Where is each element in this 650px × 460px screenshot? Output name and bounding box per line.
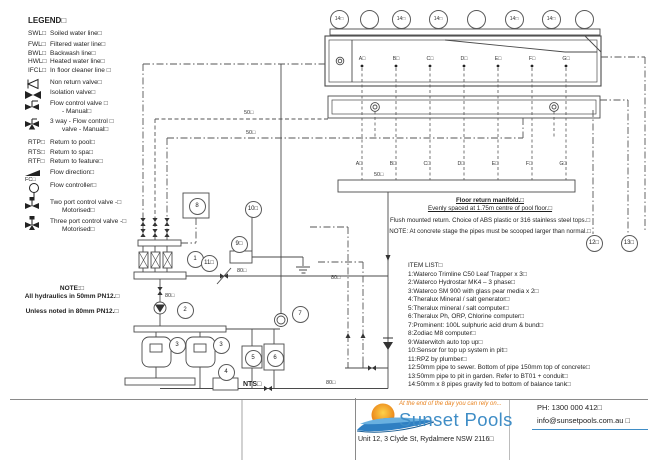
legend-abbr-ifcl: IFCL□: [28, 67, 46, 75]
tag-rpz: 11□: [201, 255, 218, 272]
contact-underline-rule: [532, 429, 648, 430]
legend-desc-bwl: Backwash line□: [50, 50, 95, 58]
item-5: 5:Theralux mineral / salt computer□: [408, 305, 508, 313]
item-4: 4:Theralux Mineral / salt generator□: [408, 296, 509, 304]
flow-gauge-symbol: [275, 314, 288, 327]
manifold-point-b: B□: [390, 161, 397, 168]
legend-abbr-swl: SWL□: [28, 30, 46, 38]
legend-abbr-rtf: RTF□: [28, 158, 44, 166]
pipe-label-80-pump: 80□: [165, 293, 174, 300]
pool-point-f: F□: [529, 56, 535, 63]
legend-desc2-three-port: Motorised□: [62, 226, 94, 234]
legend-desc-non-return: Non return valve□: [50, 79, 102, 87]
legend-abbr-hwl: HWL□: [28, 58, 46, 66]
three-port-valve-icon: [24, 215, 42, 231]
tag-top-up-sensor: 10□: [245, 201, 262, 218]
trapper-bottom-manifold: [134, 272, 186, 279]
legend-desc-rts: Return to spa□: [50, 149, 93, 157]
brand-tagline: At the end of the day you can rely on...: [399, 401, 502, 407]
floor-note-line1: Floor return manifold.□: [370, 197, 610, 204]
flow-control-valve-icon: [24, 99, 42, 113]
item-11: 11:RPZ by plumber□: [408, 356, 466, 364]
tag-acid-drum: 7: [292, 306, 309, 323]
legend-desc-ifcl: In floor cleaner line □: [50, 67, 111, 75]
filter-bottom-manifold: [125, 378, 195, 385]
legend-desc-fcv: Flow control valve □: [50, 100, 108, 108]
manifold-point-e: E□: [492, 161, 499, 168]
floor-note-line4: NOTE: At concrete stage the pipes must b…: [370, 228, 610, 235]
gravity-pipe-callout-6: 14□: [505, 10, 524, 29]
legend-desc-two-port: Two port control valve -□: [50, 199, 121, 207]
flow-arrows: [346, 255, 391, 338]
item-9: 9:Waterwitch auto top up□: [408, 339, 482, 347]
waterwitch-box: [230, 251, 252, 263]
company-address: Unit 12, 3 Clyde St, Rydalmere NSW 2116□: [358, 436, 494, 445]
tag-chlorine-computer: 6: [267, 350, 284, 367]
item-1: 1:Waterco Trimline C50 Leaf Trapper x 3□: [408, 271, 527, 279]
pool-hydraulics-schematic-sheet: LEGEND□ SWL□ Soiled water line□ FWL□ Fil…: [0, 0, 650, 460]
filtered-water-line: [155, 119, 328, 240]
pipe-label-80-suction: 80□: [237, 268, 246, 275]
tag-pump: 2: [177, 302, 194, 319]
gravity-pipe-callout-3: 14□: [392, 10, 411, 29]
item-6: 6:Theralux Ph, ORP, Chlorine computer□: [408, 313, 524, 321]
item-12: 12:50mm pipe to sewer. Bottom of pipe 15…: [408, 364, 590, 372]
item-3: 3:Waterco SM 900 with glass pear media x…: [408, 288, 538, 296]
gravity-pipe-callout-7: 14□: [542, 10, 561, 29]
legend-desc-rtf: Return to feature□: [50, 158, 103, 166]
company-email: info@sunsetpools.com.au □: [537, 416, 630, 425]
filter-top-manifold: [134, 326, 226, 332]
pool-point-a: A□: [359, 56, 366, 63]
legend-desc-flow-direction: Flow direction□: [50, 169, 94, 177]
two-port-valve-icon: [24, 196, 42, 211]
item-14: 14:50mm x 8 pipes gravity fed to bottom …: [408, 381, 571, 389]
legend-abbr-rts: RTS□: [28, 149, 45, 157]
pool-point-b: B□: [393, 56, 400, 63]
pool-point-d: D□: [461, 56, 468, 63]
item-list-title: ITEM LIST□: [408, 262, 442, 270]
nts-label: NTS□: [243, 381, 261, 390]
legend-desc-fwl: Filtered water line□: [50, 41, 105, 49]
multiport-valve-2: [194, 344, 206, 352]
pool-point-e: E□: [495, 56, 502, 63]
pipe-label-50-manifold: 50□: [374, 172, 383, 179]
pool-point-g: G□: [562, 56, 569, 63]
gravity-pipe-callout-2: [360, 10, 379, 29]
legend-desc-isolation: Isolation valve□: [50, 89, 95, 97]
tag-sewer-pipe: 12□: [586, 235, 603, 252]
legend-desc2-fcv: - Manual□: [62, 108, 91, 116]
tag-waterwitch: 9□: [231, 236, 248, 253]
hydraulics-note-line2: Unless noted in 80mm PN12.□: [12, 308, 132, 316]
item-13: 13:50mm pipe to pit in garden. Refer to …: [408, 373, 568, 381]
tag-filter-2: 3: [213, 337, 230, 354]
manifold-point-g: G□: [559, 161, 566, 168]
hydraulics-note-title: NOTE:□: [12, 285, 132, 293]
legend-desc-rtp: Return to pool□: [50, 139, 95, 147]
pipe-label-80-return: 80□: [326, 380, 335, 387]
tag-filter-1: 3: [169, 337, 186, 354]
gravity-pipe-callout-8: [575, 10, 594, 29]
pipe-label-50-upper: 50□: [244, 110, 253, 117]
legend-desc-3way: 3 way - Flow control □: [50, 118, 114, 126]
legend-desc-three-port: Three port control valve -□: [50, 218, 126, 226]
multiport-valve-1: [150, 344, 162, 352]
pump-symbol: [154, 302, 166, 314]
three-way-valve-icon: [24, 117, 42, 132]
company-phone: PH: 1300 000 412□: [537, 403, 602, 412]
pipe-label-80-balance: 80□: [331, 275, 340, 282]
manifold-point-d: D□: [458, 161, 465, 168]
tag-zodiac-computer: 8: [189, 198, 206, 215]
pipe-label-50-lower: 50□: [246, 130, 255, 137]
legend-abbr-rtp: RTP□: [28, 139, 45, 147]
gravity-pipe-callout-4: 14□: [429, 10, 448, 29]
legend-abbr-bwl: BWL□: [28, 50, 46, 58]
item-8: 8:Zodiac M8 computer□: [408, 330, 475, 338]
manifold-point-a: A□: [356, 161, 363, 168]
hydraulics-note-line1: All hydraulics in 50mm PN12.□: [12, 293, 132, 301]
legend-desc2-two-port: Motorised□: [62, 207, 94, 215]
tag-pit-pipe: 13□: [621, 235, 638, 252]
pool-point-c: C□: [427, 56, 434, 63]
item-10: 10:Sensor for top up system in pit□: [408, 347, 507, 355]
floor-note-line3: Flush mounted return. Choice of ABS plas…: [370, 217, 610, 224]
item-2: 2:Waterco Hydrostar MK4 – 3 phase□: [408, 279, 515, 287]
tag-salt-computer: 5: [245, 350, 262, 367]
trapper-top-manifold: [138, 240, 181, 246]
floor-note-line2: Evenly spaced at 1.75m centre of pool fl…: [370, 205, 610, 212]
legend-title: LEGEND□: [28, 16, 66, 26]
legend-desc2-3way: valve - Manual□: [62, 126, 108, 134]
gravity-pipe-callout-1: 14□: [330, 10, 349, 29]
item-7: 7:Prominent: 100L sulphuric acid drum & …: [408, 322, 543, 330]
legend-desc-flow-controller: Flow controller□: [50, 182, 96, 190]
manifold-point-c: C□: [424, 161, 431, 168]
legend-desc-hwl: Heated water line□: [50, 58, 105, 66]
legend-desc-swl: Soiled water line□: [50, 30, 102, 38]
tag-salt-generator: 4: [218, 364, 235, 381]
gravity-pipe-callout-5: [467, 10, 486, 29]
manifold-point-f: F□: [526, 161, 532, 168]
brand-name: Sunset Pools: [399, 409, 513, 431]
legend-abbr-fwl: FWL□: [28, 41, 46, 49]
